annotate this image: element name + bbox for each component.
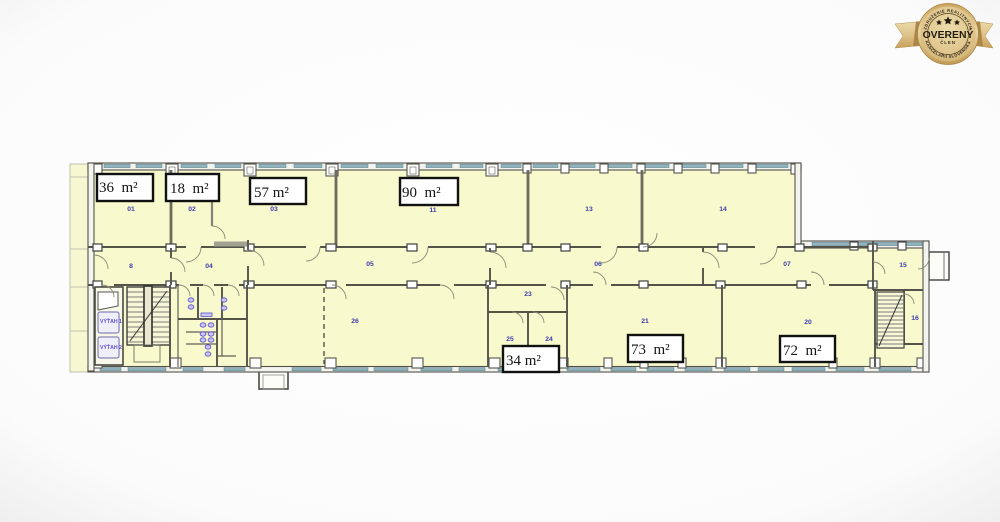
svg-text:90 m²: 90 m² bbox=[402, 185, 441, 201]
svg-text:07: 07 bbox=[783, 261, 791, 268]
svg-text:14: 14 bbox=[719, 206, 727, 213]
svg-text:21: 21 bbox=[641, 318, 649, 325]
svg-text:25: 25 bbox=[506, 336, 514, 343]
svg-text:11: 11 bbox=[429, 207, 436, 214]
svg-text:73 m²: 73 m² bbox=[631, 342, 670, 358]
svg-text:34 m²: 34 m² bbox=[506, 353, 541, 369]
svg-text:01: 01 bbox=[127, 206, 135, 213]
svg-text:ČLEN: ČLEN bbox=[940, 40, 956, 45]
svg-text:13: 13 bbox=[585, 206, 593, 213]
svg-text:24: 24 bbox=[545, 336, 553, 343]
svg-text:20: 20 bbox=[804, 319, 812, 326]
svg-text:05: 05 bbox=[366, 261, 374, 268]
svg-text:15: 15 bbox=[899, 262, 907, 269]
svg-text:57 m²: 57 m² bbox=[254, 185, 289, 201]
svg-text:VÝŤAH 1: VÝŤAH 1 bbox=[100, 317, 122, 325]
svg-text:03: 03 bbox=[270, 206, 278, 213]
svg-text:26: 26 bbox=[351, 318, 359, 325]
svg-text:72 m²: 72 m² bbox=[783, 343, 822, 359]
svg-text:23: 23 bbox=[524, 291, 532, 298]
svg-text:04: 04 bbox=[205, 263, 213, 270]
svg-text:16: 16 bbox=[911, 315, 919, 322]
svg-text:36 m²: 36 m² bbox=[99, 180, 138, 196]
svg-text:06: 06 bbox=[594, 261, 602, 268]
svg-text:8: 8 bbox=[129, 263, 133, 270]
svg-text:02: 02 bbox=[188, 206, 196, 213]
svg-text:18 m²: 18 m² bbox=[170, 181, 209, 197]
svg-text:VÝŤAH 2: VÝŤAH 2 bbox=[100, 343, 122, 351]
